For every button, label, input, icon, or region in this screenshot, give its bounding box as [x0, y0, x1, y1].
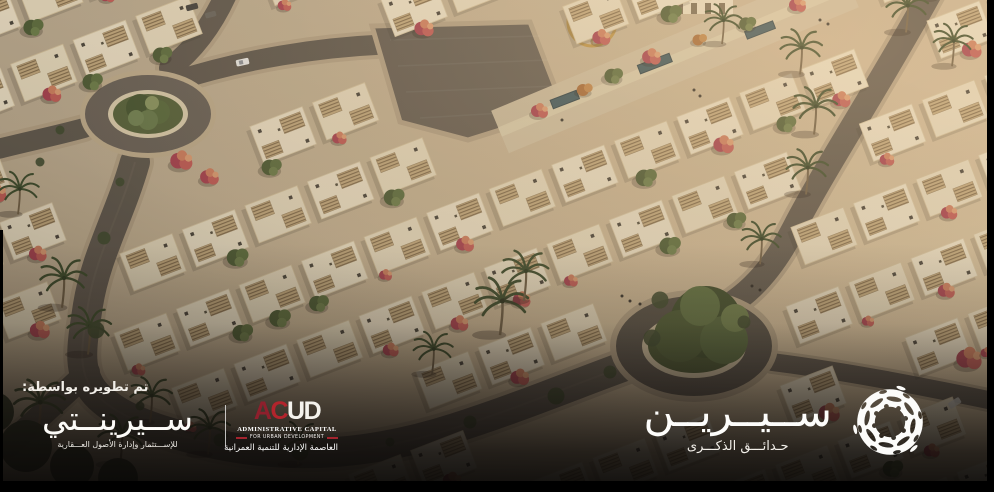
- developed-by-label: تم تطويره بواسطة:: [20, 380, 338, 395]
- hero-banner: تم تطويره بواسطة: ســيرينــتي للإســـتثم…: [0, 0, 994, 492]
- serenity-tagline: للإســـتثمار وإدارة الأصول العـــقارية: [20, 440, 215, 449]
- acud-letter-a: A: [254, 397, 271, 425]
- logo-divider: [225, 405, 226, 447]
- sereen-lockup: ســيــريــن حـدائـــق الذكـــرى: [643, 390, 832, 454]
- project-logo: ســيــريــن حـدائـــق الذكـــرى: [643, 382, 930, 462]
- acud-letter-d: D: [304, 397, 321, 425]
- acud-wordmark: ACUD: [236, 399, 338, 424]
- acud-line-arabic: العاصمة الإدارية للتنمية العمرانية: [236, 443, 338, 453]
- red-rule-right: [327, 437, 338, 439]
- acud-letter-c: C: [270, 397, 287, 425]
- serenity-wordmark: ســيرينــتي: [20, 402, 215, 437]
- acud-logo: ACUD ADMINISTRATIVE CAPITAL FOR URBAN DE…: [236, 399, 338, 453]
- acud-line2-text: FOR URBAN DEVELOPMENT: [250, 435, 324, 440]
- sereen-subtitle: حـدائـــق الذكـــرى: [643, 439, 832, 454]
- sereen-wordmark: ســيــريــن: [643, 390, 832, 434]
- credits-left: تم تطويره بواسطة: ســيرينــتي للإســـتثم…: [20, 380, 338, 453]
- letterbox-left: [0, 230, 3, 492]
- red-rule-left: [236, 437, 247, 439]
- letterbox-bottom: [0, 481, 994, 492]
- leaf-wreath-icon: [850, 382, 930, 462]
- developer-logos-row: ســيرينــتي للإســـتثمار وإدارة الأصول ا…: [20, 399, 338, 453]
- acud-letter-u: U: [287, 397, 304, 425]
- letterbox-right: [987, 0, 994, 492]
- acud-line-administrative-capital: ADMINISTRATIVE CAPITAL: [236, 426, 338, 433]
- acud-line-for-urban-development: FOR URBAN DEVELOPMENT: [236, 435, 338, 440]
- serenity-logo: ســيرينــتي للإســـتثمار وإدارة الأصول ا…: [20, 402, 215, 449]
